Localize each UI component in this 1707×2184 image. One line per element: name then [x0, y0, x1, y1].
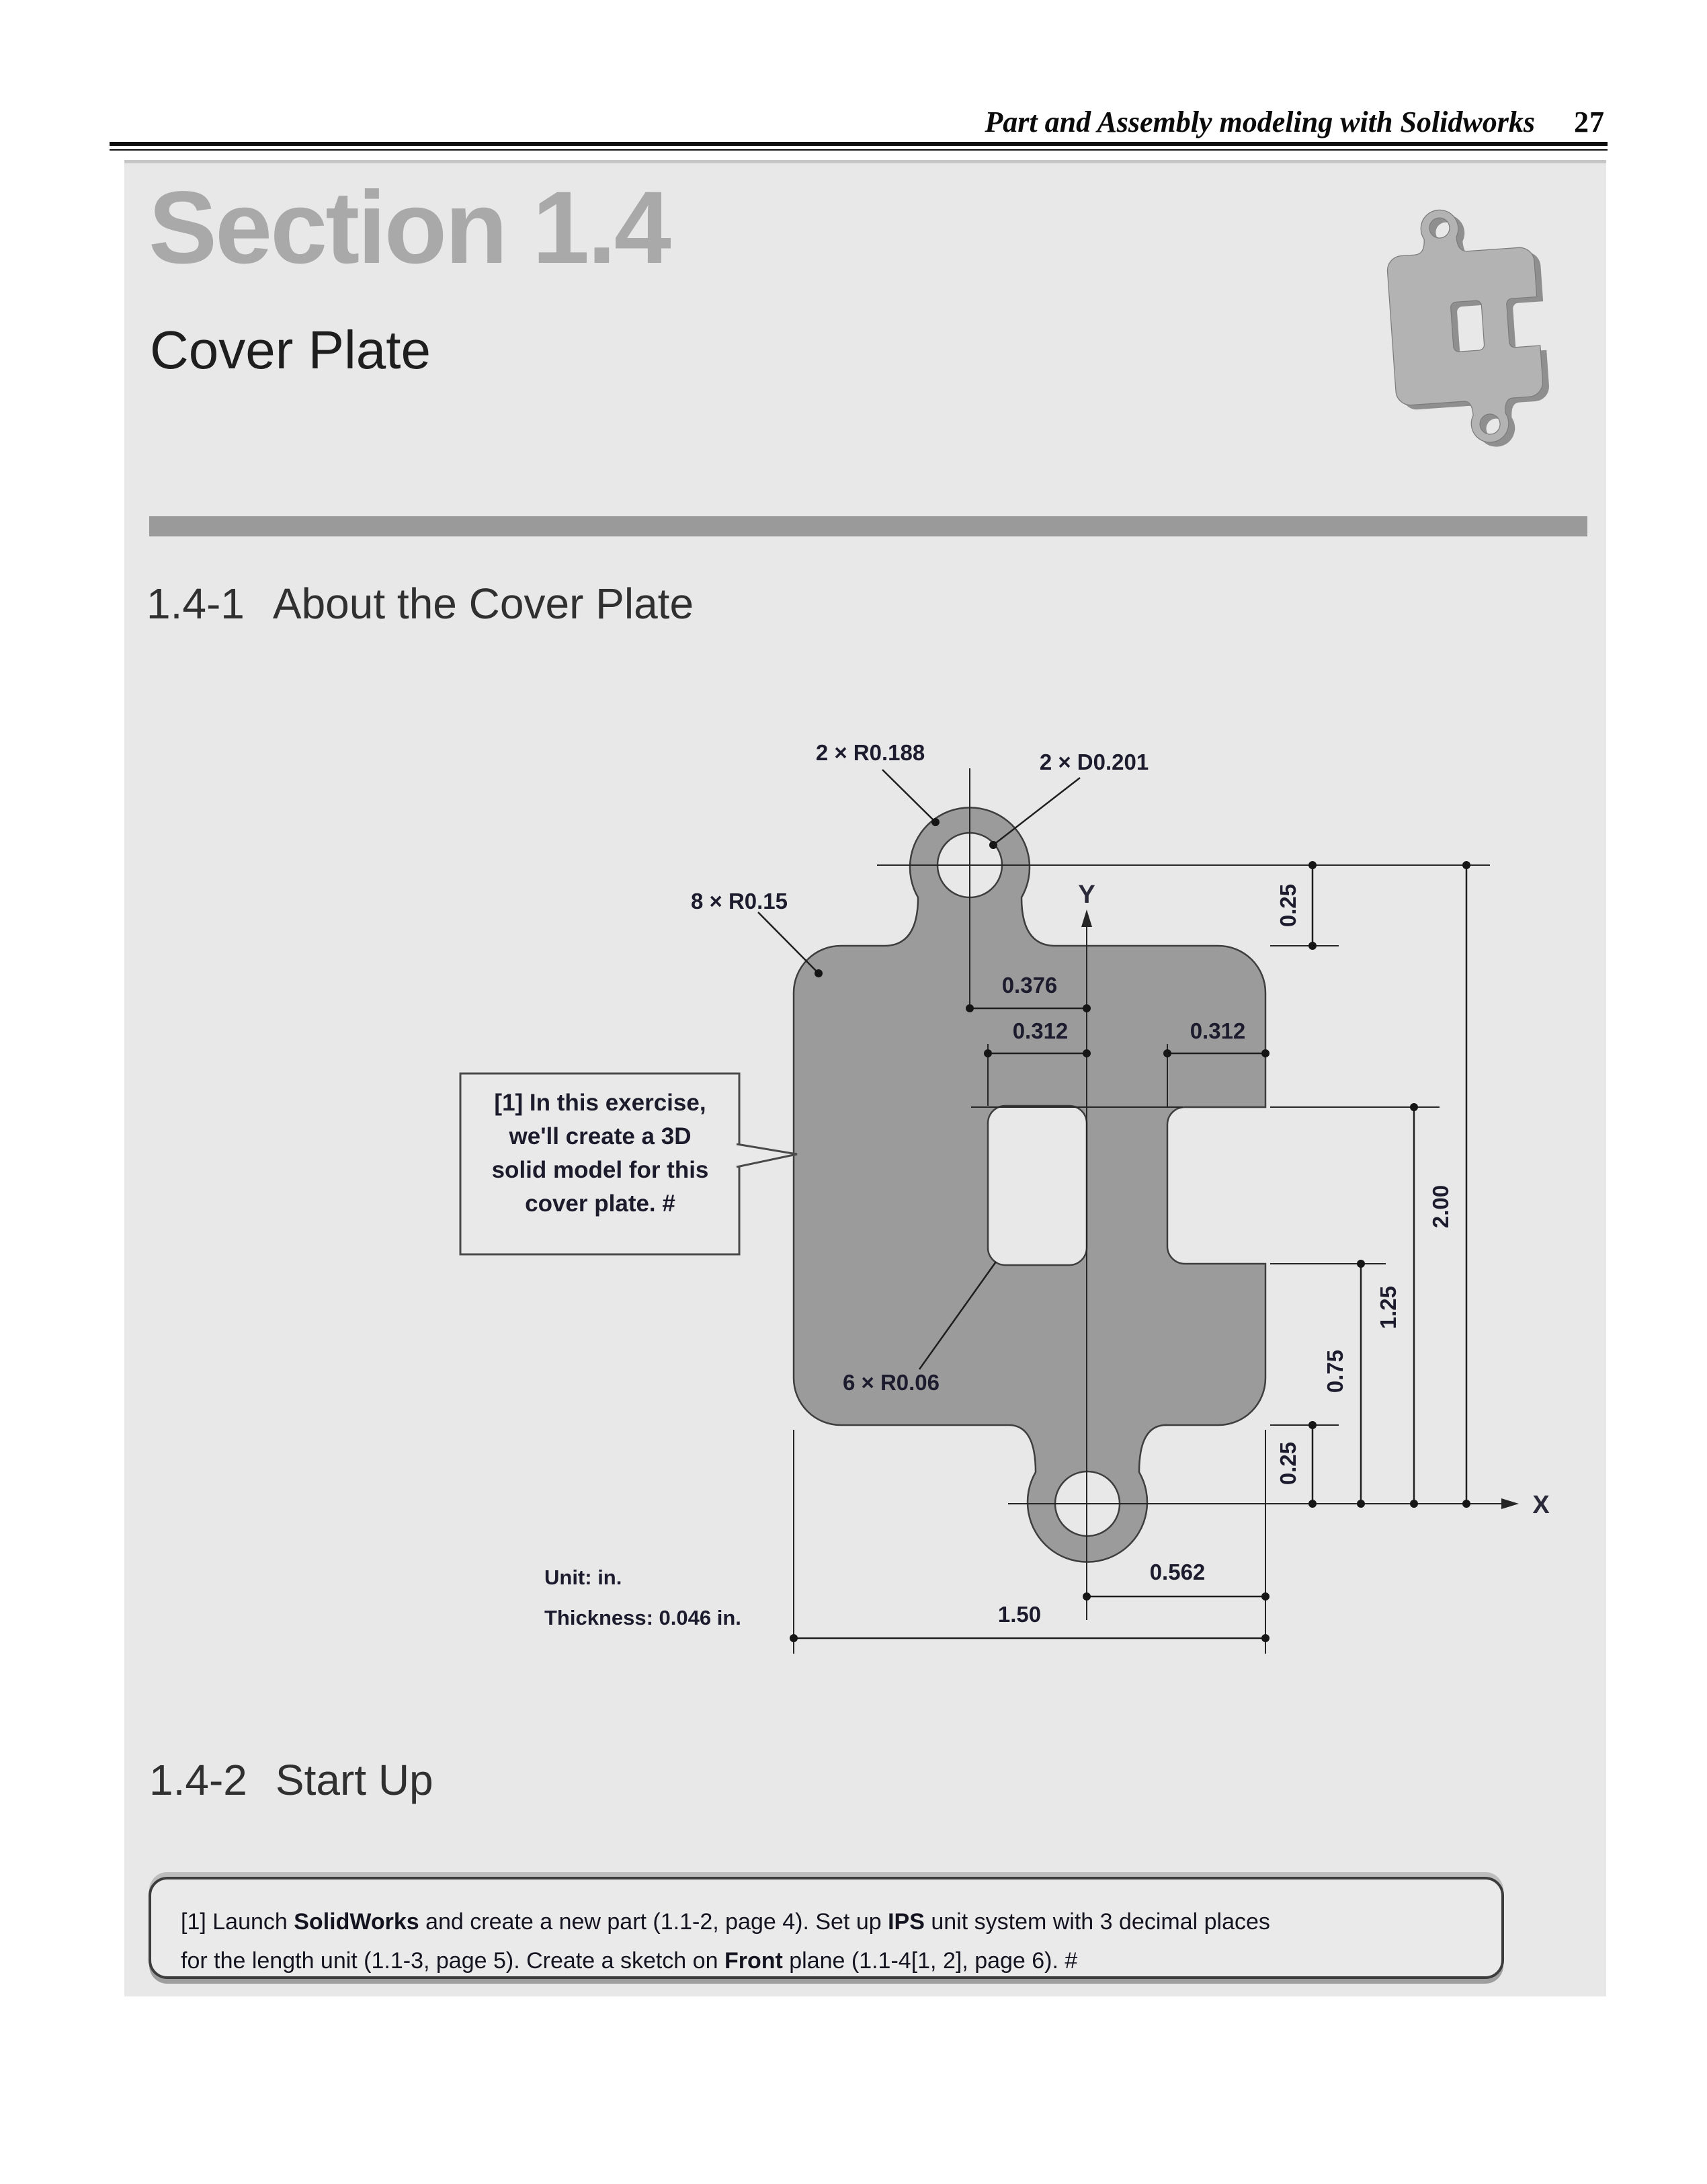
callout-line-3: solid model for this	[492, 1157, 709, 1183]
instruction-text: unit system with 3 decimal places	[925, 1909, 1270, 1935]
dim-notch-width: 0.312	[1190, 1018, 1246, 1043]
dim-top-margin: 0.25	[1276, 884, 1300, 927]
page-header: Part and Assembly modeling with Solidwor…	[985, 105, 1605, 139]
dim-total-height: 2.00	[1428, 1185, 1453, 1228]
x-axis-arrowhead	[1501, 1498, 1519, 1509]
dim-total-width: 1.50	[998, 1602, 1041, 1627]
instruction-text: and create a new part (1.1-2, page 4). S…	[419, 1909, 888, 1935]
instruction-text: for the length unit (1.1-3, page 5). Cre…	[181, 1948, 724, 1974]
instruction-bold-front: Front	[724, 1948, 783, 1974]
page-number: 27	[1574, 106, 1605, 138]
axis-label-x: X	[1532, 1491, 1550, 1519]
callout-line-4: cover plate. #	[525, 1190, 675, 1217]
instruction-bold-solidworks: SolidWorks	[294, 1909, 419, 1935]
header-rule-thin	[110, 149, 1608, 151]
book-page: Part and Assembly modeling with Solidwor…	[0, 0, 1707, 2184]
dim-tab-offset: 0.376	[1002, 973, 1058, 998]
dim-slot-offset: 0.312	[1013, 1018, 1069, 1043]
heading-startup-number: 1.4-2	[149, 1756, 247, 1804]
heading-about-number: 1.4-1	[147, 579, 245, 628]
header-book-title: Part and Assembly modeling with Solidwor…	[985, 106, 1535, 138]
callout-line-1: [1] In this exercise,	[494, 1090, 706, 1116]
technical-drawing: Y X	[403, 676, 1653, 1724]
dim-hole-offset: 0.562	[1150, 1560, 1206, 1584]
heading-about: 1.4-1About the Cover Plate	[147, 579, 694, 629]
section-divider-bar	[149, 516, 1587, 536]
callout-pointer	[737, 1144, 797, 1167]
heading-about-title: About the Cover Plate	[273, 579, 694, 628]
callout-line-2: we'll create a 3D	[509, 1123, 692, 1149]
note-unit: Unit: in.	[544, 1566, 622, 1589]
instruction-text: plane (1.1-4[1, 2], page 6). #	[783, 1948, 1078, 1974]
section-subtitle: Cover Plate	[150, 319, 431, 381]
section-title: Section 1.4	[149, 169, 669, 287]
y-axis-arrowhead	[1081, 909, 1092, 927]
label-corner-radius: 8 × R0.15	[691, 889, 788, 914]
label-fillet-radius: 6 × R0.06	[843, 1370, 940, 1395]
note-thickness: Thickness: 0.046 in.	[544, 1606, 741, 1629]
dim-bottom-margin: 0.25	[1276, 1442, 1300, 1485]
label-tab-radius: 2 × R0.188	[816, 740, 925, 765]
dim-notch-bottom: 0.75	[1323, 1350, 1347, 1393]
instruction-text: [1] Launch	[181, 1909, 294, 1935]
heading-startup: 1.4-2Start Up	[149, 1755, 433, 1805]
instruction-bold-ips: IPS	[888, 1909, 925, 1935]
header-rule-thick	[110, 142, 1608, 146]
label-hole-diameter: 2 × D0.201	[1040, 750, 1149, 774]
part-3d-thumbnail	[1344, 171, 1586, 481]
cover-plate-outline	[794, 807, 1265, 1562]
heading-startup-title: Start Up	[276, 1756, 433, 1804]
axis-label-y: Y	[1078, 881, 1095, 909]
content-sheet: Section 1.4 Cover Plate 1.4-1About the C…	[124, 160, 1606, 1996]
startup-instruction-box: [1] Launch SolidWorks and create a new p…	[149, 1877, 1504, 1979]
dim-notch-top: 1.25	[1376, 1286, 1401, 1329]
